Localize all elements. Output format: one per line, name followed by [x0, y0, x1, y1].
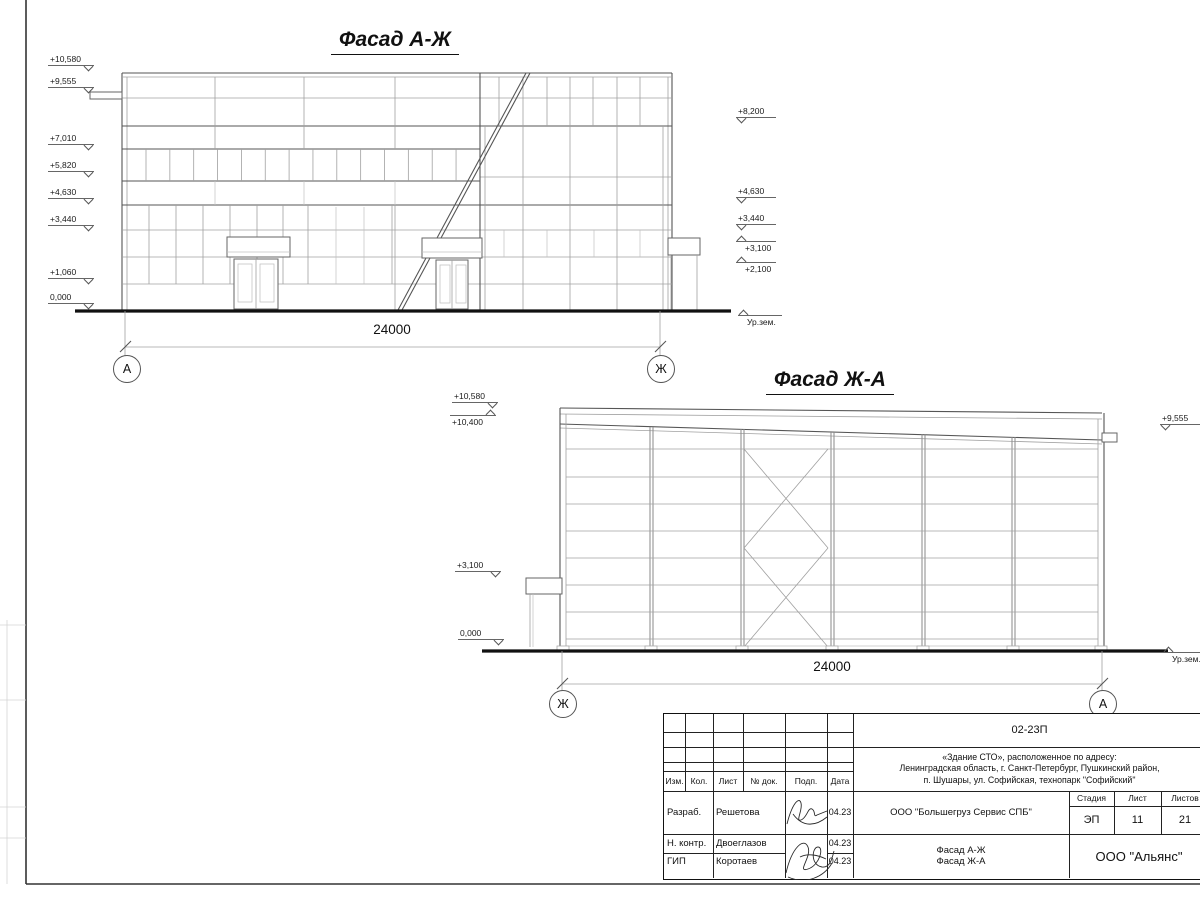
elevation-mark: +1,060: [48, 267, 94, 280]
facade-aj-title-text: Фасад А-Ж: [331, 28, 459, 55]
row-name: Коротаев: [713, 853, 785, 878]
row-role: Н. контр.: [664, 834, 713, 853]
signature: [783, 792, 835, 834]
elevation-mark: +9,555: [48, 76, 94, 89]
titleblock-line: [664, 762, 853, 763]
stage-label: Стадия: [1069, 791, 1114, 806]
address-line: «Здание СТО», расположенное по адресу:: [942, 752, 1117, 764]
ground-level-mark: Ур.зем.: [738, 315, 782, 328]
drawing-name-line: Фасад А-Ж: [937, 845, 986, 856]
axis-bubble: А: [113, 355, 141, 383]
facade-ja-title: Фасад Ж-А: [720, 368, 940, 392]
row-name: Двоеглазов: [713, 834, 785, 853]
project-code: 02-23П: [853, 714, 1200, 747]
dimension-label: 24000: [782, 659, 882, 674]
client-org: ООО "Большегруз Сервис СПБ": [853, 791, 1069, 834]
axis-bubble: Ж: [647, 355, 675, 383]
signature: [780, 833, 838, 880]
axis-bubble: Ж: [549, 690, 577, 718]
elevation-mark: +10,580: [452, 391, 498, 404]
drawing-name: Фасад А-Ж Фасад Ж-А: [853, 834, 1069, 878]
row-name: Решетова: [713, 791, 785, 834]
elevation-mark: 0,000: [48, 292, 94, 305]
elevation-mark: +4,630: [48, 187, 94, 200]
elevation-mark: +3,100: [455, 560, 501, 573]
drawing-name-line: Фасад Ж-А: [937, 856, 986, 867]
col-header-data: Дата: [827, 771, 853, 791]
ground-level-mark: Ур.зем.: [1163, 652, 1200, 665]
elevation-mark: +10,400: [450, 415, 496, 428]
titleblock-line: [664, 732, 853, 733]
elevation-mark: +3,100: [736, 241, 776, 254]
title-block: Изм. Кол. Лист № док. Подп. Дата Разраб.…: [663, 713, 1200, 880]
address-line: Ленинградская область, г. Санкт-Петербур…: [899, 763, 1159, 775]
project-address: «Здание СТО», расположенное по адресу: Л…: [853, 747, 1200, 791]
col-header-doc: № док.: [743, 771, 785, 791]
elevation-mark: +5,820: [48, 160, 94, 173]
elevation-mark: +8,200: [736, 106, 776, 119]
elevation-mark: 0,000: [458, 628, 504, 641]
sheets-total: 21: [1161, 806, 1200, 834]
facade-ja-title-text: Фасад Ж-А: [766, 368, 894, 395]
elevation-mark: +2,100: [736, 262, 776, 275]
row-role: ГИП: [664, 853, 713, 878]
sheet-number: 11: [1114, 806, 1161, 834]
elevation-mark: +9,555: [1160, 413, 1200, 426]
stage-value: ЭП: [1069, 806, 1114, 834]
col-header-izm: Изм.: [664, 771, 685, 791]
sheet-label: Лист: [1114, 791, 1161, 806]
elevation-mark: +3,440: [736, 213, 776, 226]
sheets-label: Листов: [1161, 791, 1200, 806]
row-role: Разраб.: [664, 791, 713, 834]
col-header-podp: Подп.: [785, 771, 827, 791]
elevation-mark: +4,630: [736, 186, 776, 199]
elevation-mark: +3,440: [48, 214, 94, 227]
col-header-kol: Кол.: [685, 771, 713, 791]
elevation-mark: +10,580: [48, 54, 94, 67]
address-line: п. Шушары, ул. Софийская, технопарк "Соф…: [924, 775, 1136, 787]
drawing-sheet: Фасад А-Ж Фасад Ж-А +10,580 +9,555 +7,01…: [0, 0, 1200, 900]
elevation-mark: +7,010: [48, 133, 94, 146]
facade-aj-title: Фасад А-Ж: [285, 28, 505, 52]
company-name: ООО "Альянс": [1069, 834, 1200, 878]
col-header-list: Лист: [713, 771, 743, 791]
dimension-label: 24000: [342, 322, 442, 337]
